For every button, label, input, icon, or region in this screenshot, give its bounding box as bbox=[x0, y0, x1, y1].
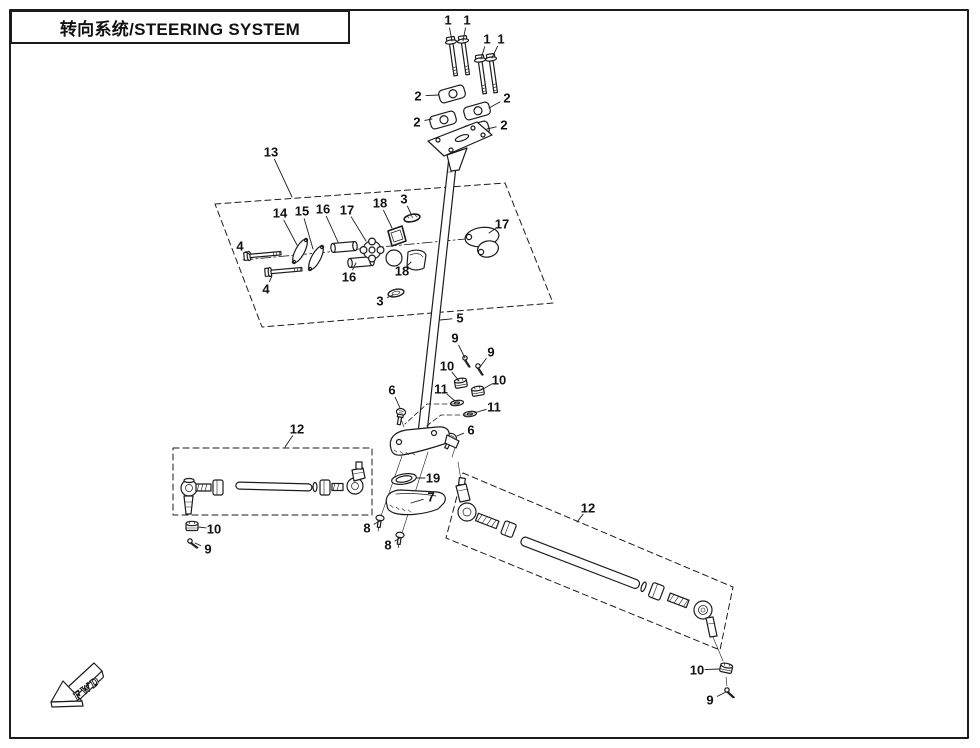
holder-strap-15 bbox=[306, 244, 326, 271]
callout-label-12: 12 bbox=[290, 422, 304, 437]
washer-11a bbox=[450, 400, 464, 407]
callout-label-11: 11 bbox=[487, 400, 501, 415]
callout-label-16: 16 bbox=[316, 202, 330, 217]
washer-11b bbox=[463, 411, 477, 418]
callout-leader-11 bbox=[447, 394, 455, 401]
callout-label-17: 17 bbox=[495, 217, 509, 232]
callout-label-2: 2 bbox=[414, 89, 421, 104]
callout-leader-9 bbox=[480, 359, 486, 368]
holder-strap-14 bbox=[290, 237, 310, 264]
riser-bolt-1b bbox=[457, 35, 473, 75]
callout-label-3: 3 bbox=[376, 294, 383, 309]
tie-rod-left-assembly bbox=[173, 448, 372, 549]
lower-clamp-7 bbox=[386, 490, 445, 515]
tie-rod-end-left-inner bbox=[332, 462, 365, 494]
callout-label-12: 12 bbox=[581, 501, 595, 516]
tie-rod-left-box bbox=[173, 448, 372, 515]
rod-ring-left bbox=[313, 483, 317, 492]
callout-leader-2 bbox=[489, 102, 500, 108]
callout-label-9: 9 bbox=[487, 345, 494, 360]
callout-label-4: 4 bbox=[236, 239, 244, 254]
callout-leader-14 bbox=[284, 220, 297, 245]
callout-label-10: 10 bbox=[492, 373, 506, 388]
page-title: 转向系统/STEERING SYSTEM bbox=[60, 15, 300, 40]
callout-label-13: 13 bbox=[264, 145, 278, 160]
riser-bolt-1d bbox=[485, 53, 501, 93]
callout-label-9: 9 bbox=[451, 331, 458, 346]
callout-leader-10 bbox=[705, 669, 719, 670]
callout-label-18: 18 bbox=[395, 264, 409, 279]
tie-rod-left-tube bbox=[236, 482, 312, 491]
clip-3a bbox=[403, 213, 420, 223]
flange-bolt-6a bbox=[394, 408, 406, 425]
callout-label-17: 17 bbox=[340, 203, 354, 218]
column-bushing-19 bbox=[391, 472, 417, 486]
jam-nut-right-a bbox=[500, 520, 516, 537]
callout-label-1: 1 bbox=[497, 32, 504, 47]
callout-label-6: 6 bbox=[388, 383, 395, 398]
page-border bbox=[10, 10, 968, 738]
callout-label-9: 9 bbox=[706, 693, 713, 708]
callout-leader-12 bbox=[285, 436, 293, 447]
callout-leader-17 bbox=[351, 217, 366, 241]
tie-rod-end-right-inner bbox=[456, 478, 476, 521]
callout-label-10: 10 bbox=[207, 522, 221, 537]
callout-label-10: 10 bbox=[440, 359, 454, 374]
tie-rod-right-tube bbox=[520, 536, 641, 590]
castle-nut-10b bbox=[471, 385, 484, 396]
column-holder-parts bbox=[244, 213, 501, 298]
bar-clamp-2b bbox=[429, 110, 458, 130]
callout-leader-9 bbox=[717, 692, 726, 696]
callout-label-1: 1 bbox=[483, 32, 490, 47]
callout-label-6: 6 bbox=[467, 423, 474, 438]
callout-label-9: 9 bbox=[204, 542, 211, 557]
callout-label-8: 8 bbox=[363, 521, 370, 536]
callout-leader-11 bbox=[474, 409, 486, 413]
callout-leader-6 bbox=[395, 397, 400, 408]
callout-label-8: 8 bbox=[384, 538, 391, 553]
callout-label-5: 5 bbox=[456, 311, 463, 326]
rod-thread-right-b bbox=[667, 593, 689, 608]
tie-rod-end-right-outer bbox=[694, 601, 717, 637]
fwd-direction-arrow: FWD bbox=[51, 663, 104, 707]
jam-nut-left-b bbox=[320, 480, 330, 495]
holder-damper-18a bbox=[388, 226, 406, 246]
callout-label-1: 1 bbox=[444, 13, 451, 28]
cotter-pin-9b bbox=[473, 363, 487, 376]
callout-layer: 1111222233445667889999101010101111121213… bbox=[195, 13, 726, 708]
parts-catalog-page: 转向系统/STEERING SYSTEM bbox=[0, 0, 980, 748]
handlebar-top-plate bbox=[428, 122, 492, 171]
callout-label-14: 14 bbox=[273, 206, 288, 221]
page-title-box: 转向系统/STEERING SYSTEM bbox=[10, 10, 350, 44]
callout-label-1: 1 bbox=[463, 13, 470, 28]
callout-leader-9 bbox=[459, 345, 465, 358]
cotter-pin-9c bbox=[186, 538, 199, 548]
holder-bolt-4b bbox=[265, 265, 303, 277]
callout-leader-2 bbox=[426, 95, 439, 96]
jam-nut-right-b bbox=[648, 582, 665, 600]
bar-clamp-2c bbox=[463, 101, 492, 121]
callout-leader-6 bbox=[457, 433, 464, 436]
steering-system-exploded-diagram: FWD 111122223344566788999910101010111112… bbox=[0, 0, 980, 748]
callout-leader-3 bbox=[407, 206, 411, 214]
callout-label-3: 3 bbox=[400, 192, 407, 207]
castle-nut-10d bbox=[719, 662, 733, 673]
callout-label-2: 2 bbox=[500, 118, 507, 133]
jam-nut-left-a bbox=[213, 480, 223, 495]
callout-label-2: 2 bbox=[413, 115, 420, 130]
callout-leader-16 bbox=[326, 216, 338, 242]
tie-rod-end-left bbox=[181, 479, 211, 515]
holder-damper-18b bbox=[407, 250, 426, 270]
callout-label-15: 15 bbox=[295, 204, 309, 219]
castle-nut-10a bbox=[454, 377, 467, 388]
callout-label-11: 11 bbox=[434, 382, 448, 397]
bar-clamp-2a bbox=[438, 84, 467, 104]
holder-bushing-16a bbox=[330, 241, 357, 252]
callout-label-10: 10 bbox=[690, 663, 704, 678]
rod-thread-right-a bbox=[476, 513, 499, 528]
upper-bracket bbox=[390, 427, 459, 455]
callout-label-19: 19 bbox=[426, 471, 440, 486]
rod-ring-right bbox=[640, 581, 647, 592]
callout-label-4: 4 bbox=[262, 282, 270, 297]
callout-label-16: 16 bbox=[342, 270, 356, 285]
column-mount-fasteners bbox=[394, 355, 486, 486]
steering-column-shaft bbox=[417, 157, 457, 442]
callout-leader-9 bbox=[195, 543, 201, 546]
callout-leader-18 bbox=[384, 210, 393, 228]
callout-label-18: 18 bbox=[373, 196, 387, 211]
callout-label-7: 7 bbox=[427, 490, 434, 505]
callout-leader-10 bbox=[483, 384, 492, 389]
cotter-pin-9a bbox=[460, 355, 474, 368]
callout-leader-5 bbox=[440, 319, 452, 320]
callout-label-2: 2 bbox=[503, 91, 510, 106]
callout-leader-13 bbox=[274, 159, 292, 197]
castle-nut-10c bbox=[186, 521, 198, 530]
callout-leader-10 bbox=[199, 527, 206, 528]
handlebar-mount-assembly bbox=[428, 35, 501, 171]
